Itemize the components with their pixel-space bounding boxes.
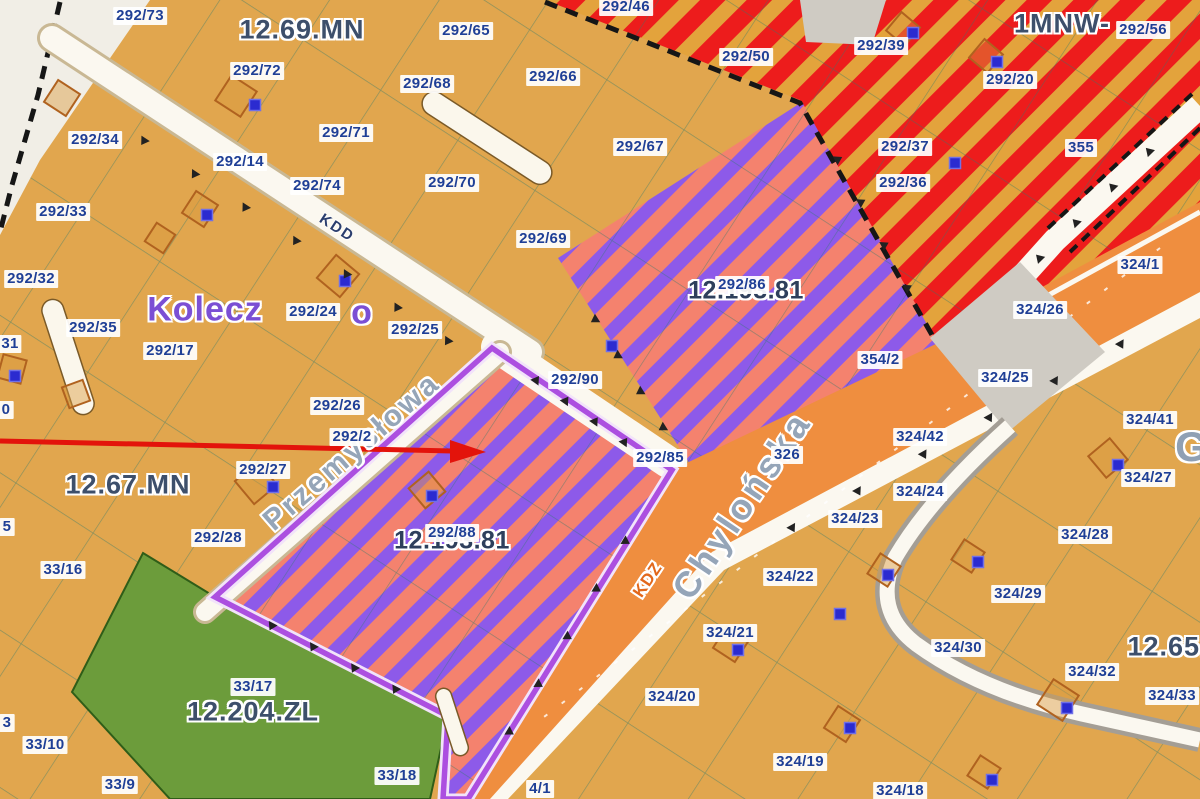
map-canvas: [0, 0, 1200, 799]
gray-area-north: [800, 0, 886, 45]
zoning-map-viewport[interactable]: 12.69.MN1MNW-12.67.MN12.204.ZL12.65.12.1…: [0, 0, 1200, 799]
